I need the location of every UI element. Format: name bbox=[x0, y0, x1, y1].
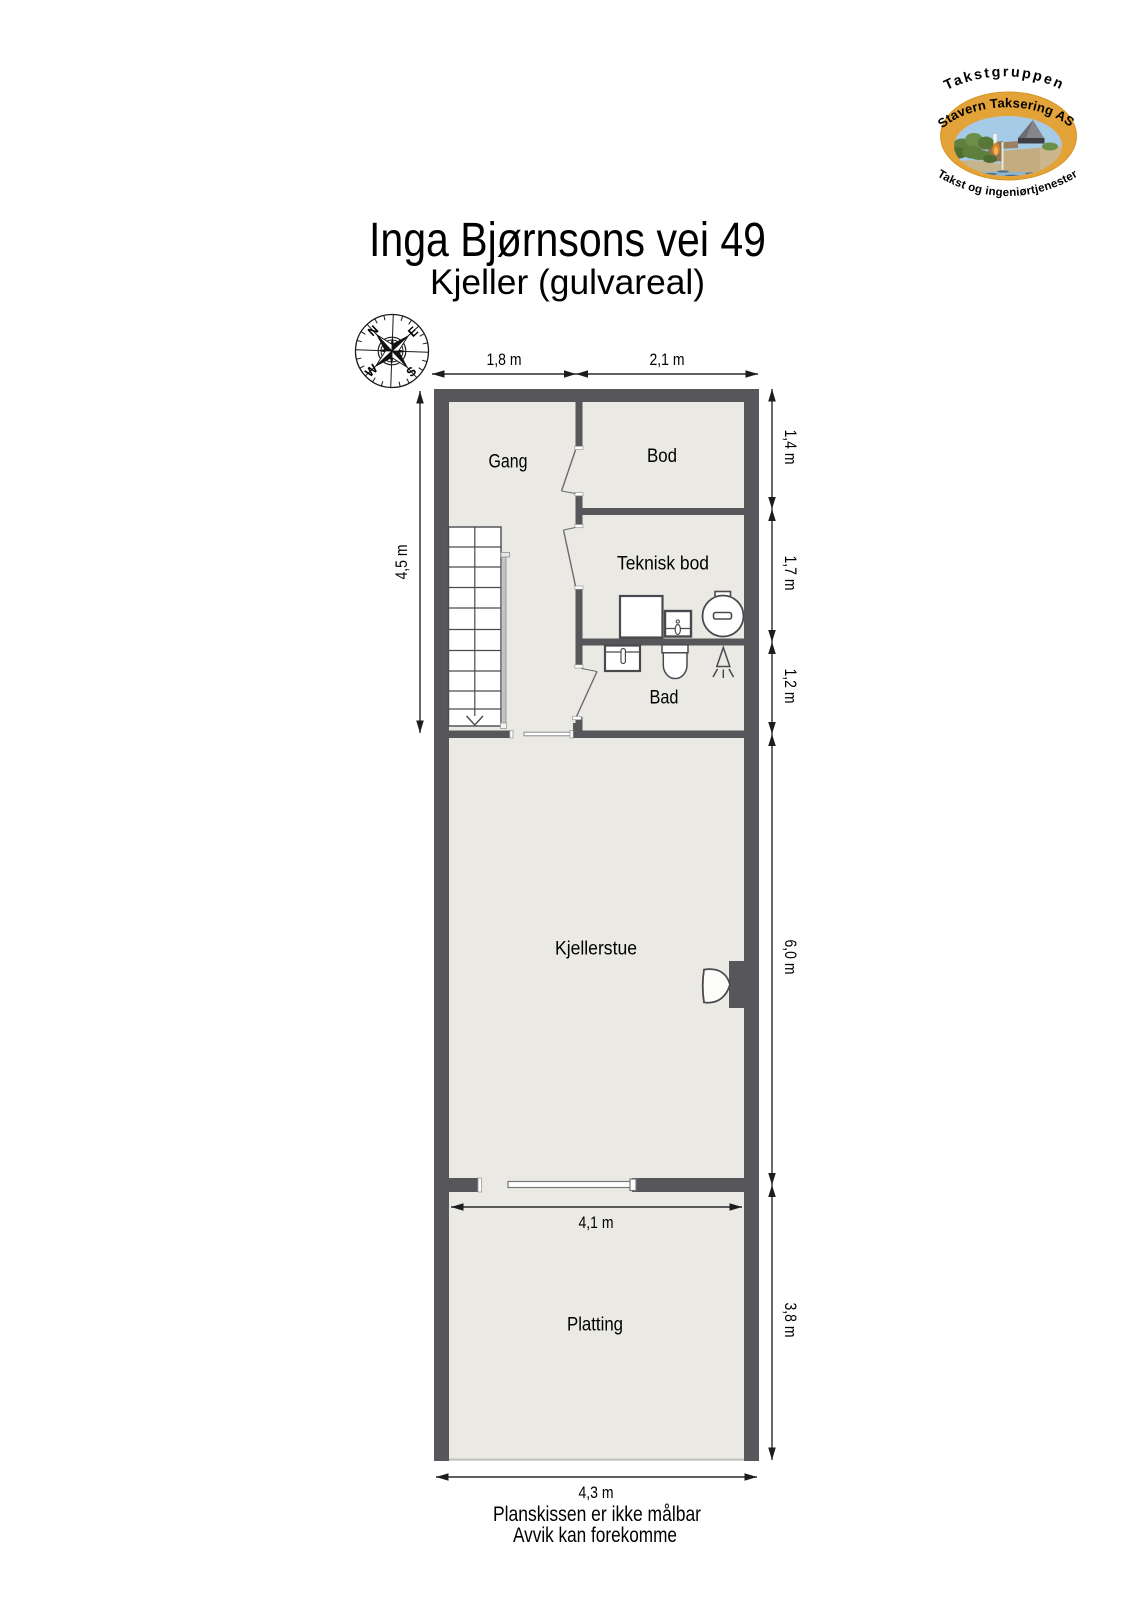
svg-text:3,8 m: 3,8 m bbox=[781, 1303, 800, 1338]
svg-text:Takstgruppen: Takstgruppen bbox=[942, 64, 1068, 93]
svg-text:Kjellerstue: Kjellerstue bbox=[555, 939, 637, 960]
svg-text:Teknisk bod: Teknisk bod bbox=[617, 554, 709, 575]
svg-text:Gang: Gang bbox=[489, 452, 528, 473]
svg-text:Bad: Bad bbox=[650, 688, 679, 709]
svg-text:4,5 m: 4,5 m bbox=[392, 545, 411, 580]
svg-text:Kjeller (gulvareal): Kjeller (gulvareal) bbox=[430, 263, 705, 302]
svg-text:4,3 m: 4,3 m bbox=[579, 1483, 614, 1502]
svg-text:Platting: Platting bbox=[567, 1315, 623, 1336]
svg-text:1,2 m: 1,2 m bbox=[781, 669, 800, 704]
svg-text:Avvik kan forekomme: Avvik kan forekomme bbox=[513, 1524, 677, 1547]
svg-text:1,4 m: 1,4 m bbox=[781, 430, 800, 465]
svg-text:Inga Bjørnsons vei 49: Inga Bjørnsons vei 49 bbox=[369, 214, 766, 267]
svg-text:4,1 m: 4,1 m bbox=[579, 1213, 614, 1232]
svg-text:Bod: Bod bbox=[647, 446, 677, 467]
svg-text:Planskissen er ikke målbar: Planskissen er ikke målbar bbox=[493, 1503, 701, 1526]
svg-text:2,1 m: 2,1 m bbox=[650, 350, 685, 369]
svg-text:1,8 m: 1,8 m bbox=[487, 350, 522, 369]
svg-text:6,0 m: 6,0 m bbox=[781, 940, 800, 975]
svg-text:1,7 m: 1,7 m bbox=[781, 556, 800, 591]
